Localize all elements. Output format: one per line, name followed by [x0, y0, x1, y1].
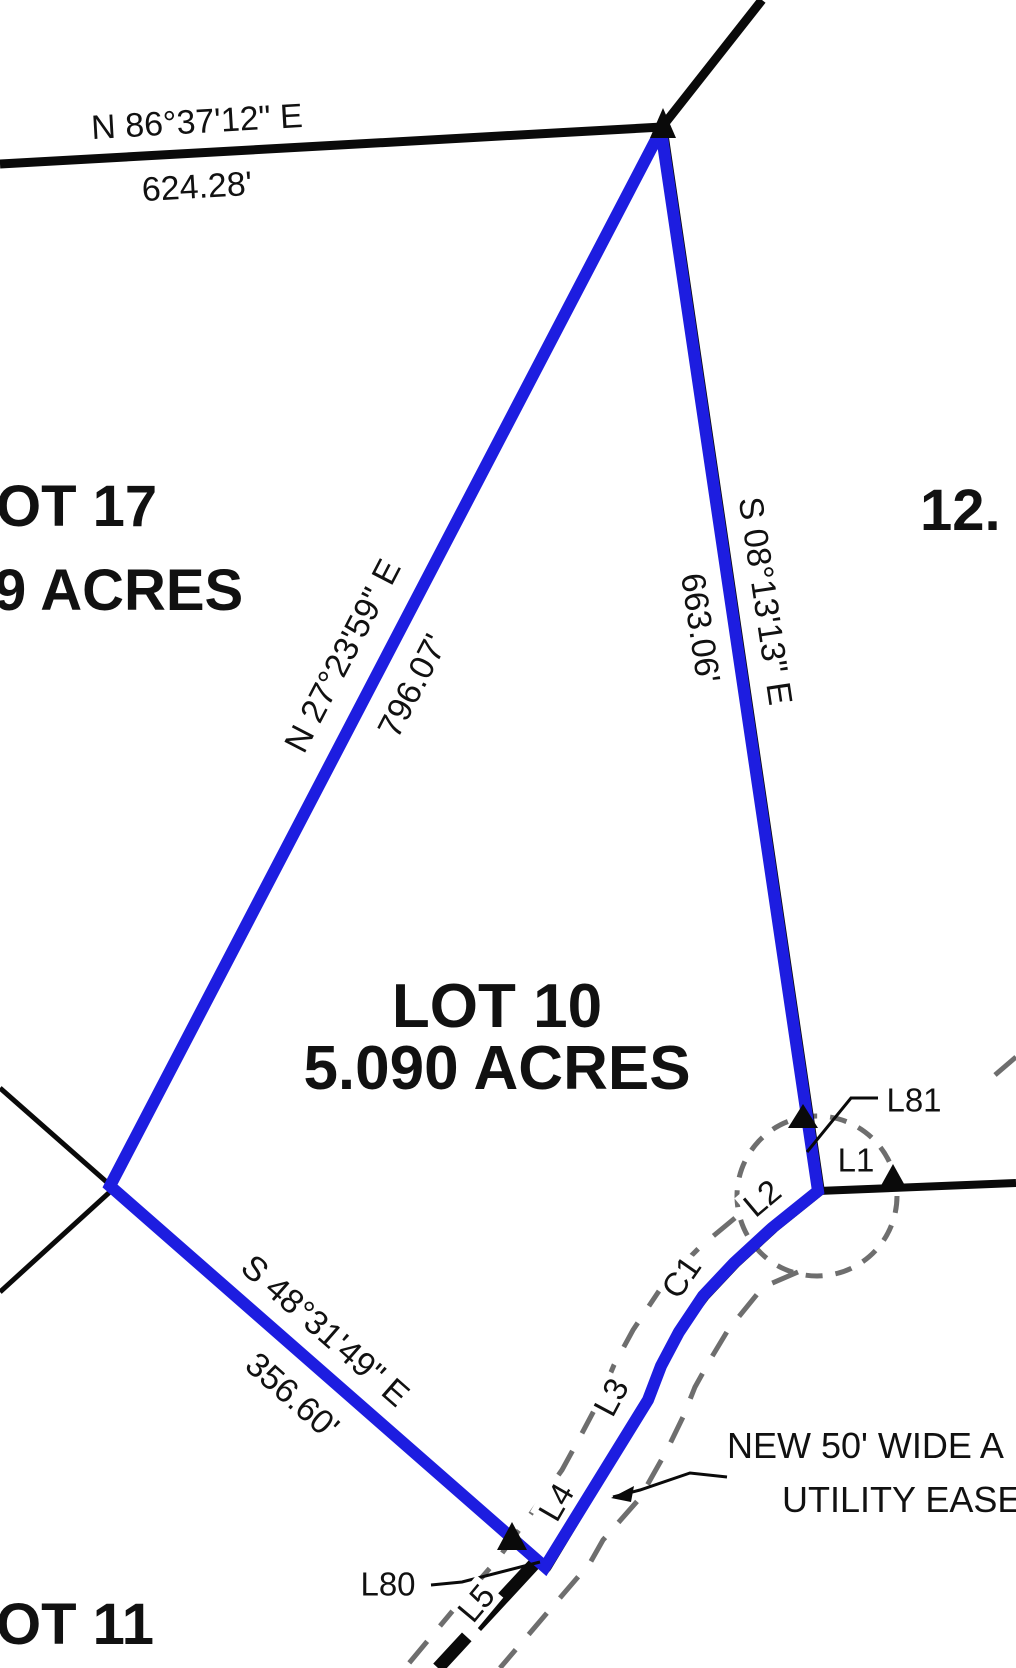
distance-north: 624.28': [141, 167, 253, 207]
monument-triangle-road: [878, 1164, 908, 1191]
lot11-name-partial: OT 11: [0, 1596, 154, 1654]
label-l1: L1: [835, 1143, 878, 1178]
easement-note-leader-arrow: [611, 1486, 634, 1502]
easement-note-line1: NEW 50' WIDE A: [727, 1428, 1004, 1464]
plat-linework: [0, 0, 1016, 1668]
easement-note-line2: UTILITY EASE: [782, 1482, 1016, 1518]
lot12-label-partial: 12.: [920, 482, 1001, 540]
northeast-boundary-line: [662, 0, 762, 127]
lot10-area: 5.090 ACRES: [303, 1038, 690, 1100]
label-l81: L81: [883, 1083, 944, 1118]
east-road-line: [818, 1183, 1016, 1191]
lot10-boundary: [110, 130, 818, 1567]
lot10-name: LOT 10: [303, 976, 690, 1038]
lot10-title-block: LOT 10 5.090 ACRES: [303, 976, 690, 1100]
west-adjoiner-line: [0, 1190, 112, 1292]
plat-map: OT 17 9 ACRES 12. OT 11 LOT 10 5.090 ACR…: [0, 0, 1016, 1668]
lot17-area-partial: 9 ACRES: [0, 562, 243, 620]
easement-dash-fragment: [995, 1057, 1016, 1075]
easement-edge-right: [500, 1272, 798, 1668]
lot17-name-partial: OT 17: [0, 478, 157, 536]
label-l80: L80: [357, 1567, 418, 1602]
